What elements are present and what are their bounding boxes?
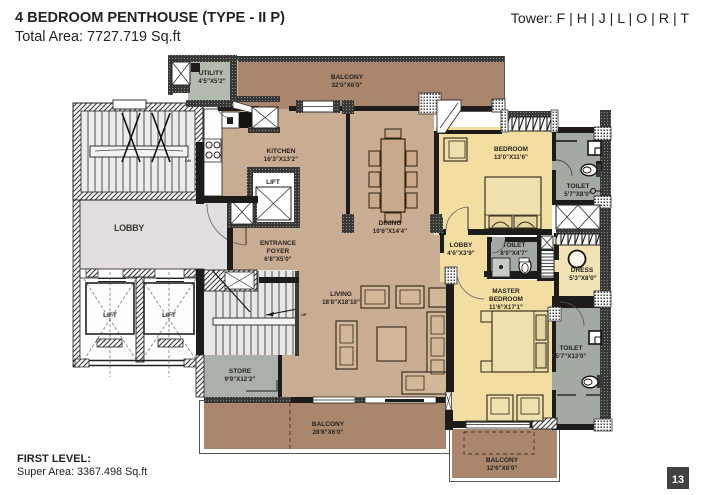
svg-text:TOILET: TOILET xyxy=(567,183,590,190)
svg-text:12’6”X6’0”: 12’6”X6’0” xyxy=(487,465,518,472)
svg-text:LIFT: LIFT xyxy=(162,312,176,319)
svg-text:11’6”X17’1”: 11’6”X17’1” xyxy=(489,304,523,311)
svg-text:LOBBY: LOBBY xyxy=(114,223,144,233)
svg-text:ENTRANCE: ENTRANCE xyxy=(260,240,297,247)
svg-text:DINING: DINING xyxy=(379,220,402,227)
svg-text:18’8”X18’10”: 18’8”X18’10” xyxy=(322,299,360,306)
svg-text:10’6”X14’4”: 10’6”X14’4” xyxy=(373,228,407,235)
svg-text:TOILET: TOILET xyxy=(503,242,526,249)
svg-text:4 BEDROOM PENTHOUSE (TYPE - II: 4 BEDROOM PENTHOUSE (TYPE - II P) xyxy=(15,10,285,26)
svg-text:LOBBY: LOBBY xyxy=(450,242,473,249)
svg-text:Tower: F | H | J | L | O | R |: Tower: F | H | J | L | O | R | T xyxy=(511,11,690,27)
svg-text:FOYER: FOYER xyxy=(267,248,290,255)
svg-text:BEDROOM: BEDROOM xyxy=(494,146,528,153)
svg-text:TOILET: TOILET xyxy=(560,345,583,352)
svg-text:6’8”X5’0”: 6’8”X5’0” xyxy=(264,256,292,263)
svg-text:5’3”X8’0”: 5’3”X8’0” xyxy=(569,275,597,282)
svg-text:STORE: STORE xyxy=(229,368,252,375)
svg-text:4’6”X3’9”: 4’6”X3’9” xyxy=(447,250,475,257)
svg-text:LIFT: LIFT xyxy=(103,312,117,319)
svg-text:DRESS: DRESS xyxy=(571,267,594,274)
svg-text:4’5”X5’2”: 4’5”X5’2” xyxy=(198,78,226,85)
svg-text:MASTER: MASTER xyxy=(492,288,520,295)
svg-text:32’0”X6’0”: 32’0”X6’0” xyxy=(332,82,363,89)
svg-text:FIRST LEVEL:: FIRST LEVEL: xyxy=(17,453,91,465)
svg-text:5’7”X13’0”: 5’7”X13’0” xyxy=(556,353,587,360)
svg-text:5’7”X8’0”: 5’7”X8’0” xyxy=(564,191,592,198)
svg-text:9’9”X12’2”: 9’9”X12’2” xyxy=(225,376,256,383)
svg-text:13: 13 xyxy=(672,474,684,486)
svg-text:BALCONY: BALCONY xyxy=(486,457,519,464)
svg-text:Total Area: 7727.719 Sq.ft: Total Area: 7727.719 Sq.ft xyxy=(15,29,181,45)
svg-text:BEDROOM: BEDROOM xyxy=(489,296,523,303)
svg-text:DN: DN xyxy=(185,158,191,163)
svg-text:28’8”X6’0”: 28’8”X6’0” xyxy=(313,429,344,436)
svg-text:LIVING: LIVING xyxy=(330,291,352,298)
svg-text:16’3”X13’2”: 16’3”X13’2” xyxy=(264,156,298,163)
svg-text:LIFT: LIFT xyxy=(266,179,280,186)
svg-text:BALCONY: BALCONY xyxy=(331,74,364,81)
svg-text:UTILITY: UTILITY xyxy=(199,70,224,77)
svg-text:8’0”X4’7”: 8’0”X4’7” xyxy=(500,250,528,257)
svg-text:Super Area: 3367.498 Sq.ft: Super Area: 3367.498 Sq.ft xyxy=(17,466,147,478)
svg-text:BALCONY: BALCONY xyxy=(312,421,345,428)
svg-text:13’0”X11’6”: 13’0”X11’6” xyxy=(494,154,528,161)
svg-text:KITCHEN: KITCHEN xyxy=(267,148,296,155)
svg-text:UP: UP xyxy=(301,312,307,317)
